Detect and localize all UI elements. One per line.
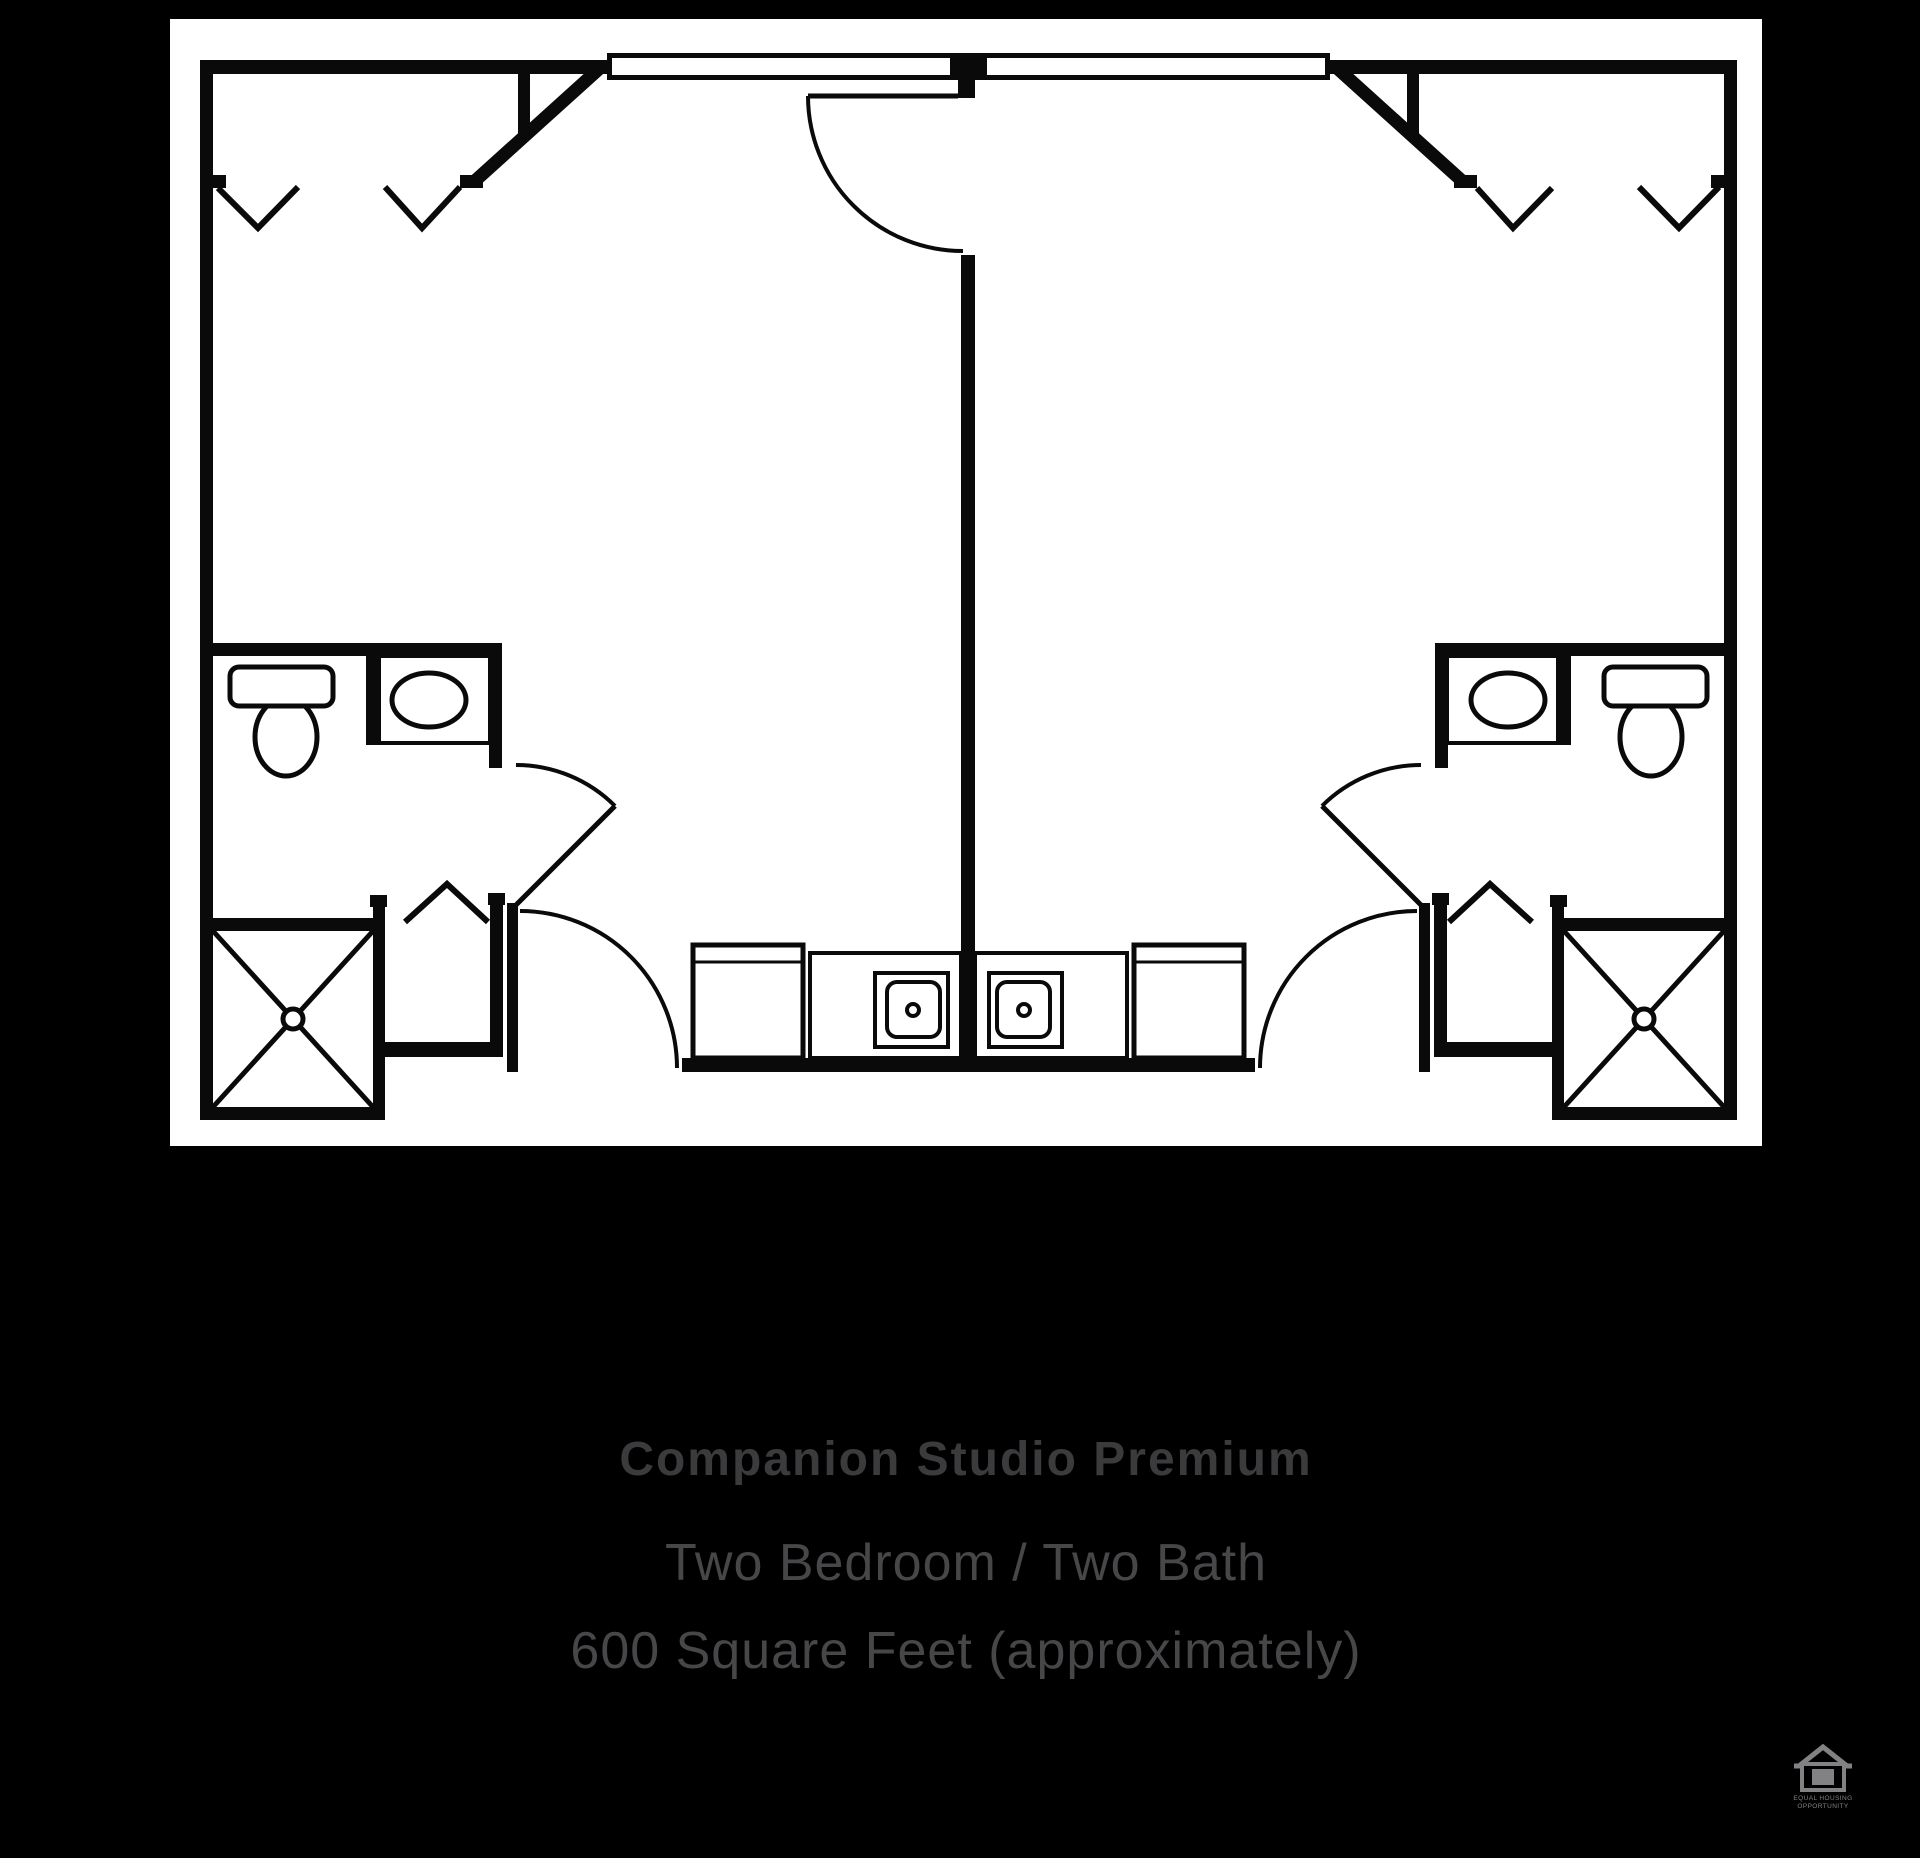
window-center-post: [950, 53, 982, 80]
entry-door-swing-left-icon: [520, 911, 677, 1068]
bath-door-tick-right: [1435, 755, 1448, 768]
closet-bottom-wall-left: [373, 1042, 503, 1057]
equal-housing-text-1: EQUAL HOUSING: [1793, 1795, 1852, 1802]
entry-door-swing-right-icon: [1260, 911, 1417, 1068]
closet-hanger-icon: [385, 187, 460, 228]
closet-side-wall-left-unit: [490, 897, 503, 1057]
entry-door-leaf-right: [1419, 903, 1430, 1072]
top-wall-left: [200, 60, 607, 74]
equal-housing-icon: EQUAL HOUSING OPPORTUNITY: [1791, 1740, 1855, 1816]
left-wall: [200, 60, 213, 1120]
floor-plan: [170, 19, 1762, 1146]
shower-top-wall-right: [1552, 918, 1737, 931]
rod-tick-left-wall: [213, 175, 226, 188]
toilet-left-icon: [230, 667, 333, 776]
caption: Companion Studio Premium Two Bedroom / T…: [170, 1432, 1762, 1695]
closet-tick-left-a: [370, 895, 387, 907]
closet-bottom-wall-right: [1434, 1042, 1564, 1057]
center-door-jamb: [958, 78, 975, 98]
page: { "caption": { "title": "Companion Studi…: [0, 0, 1920, 1858]
center-dividing-wall: [961, 255, 975, 1072]
closet-tick-right-b: [1550, 895, 1567, 907]
closet-hanger-up-icon: [405, 884, 488, 922]
equal-housing-house: EQUAL HOUSING OPPORTUNITY: [1791, 1740, 1855, 1816]
closet-tick-right-a: [1432, 893, 1449, 905]
bottom-wall-left-shower: [200, 1107, 385, 1120]
floor-plan-card: [170, 19, 1762, 1146]
closet-hanger-up-icon: [1449, 884, 1532, 922]
windows: [607, 53, 1330, 80]
closet-diagonal-right: [1337, 68, 1461, 180]
equal-housing-text-2: OPPORTUNITY: [1797, 1803, 1848, 1810]
window-right-glass: [987, 58, 1325, 75]
window-left-glass: [612, 58, 950, 75]
plan-subtitle-line1: Two Bedroom / Two Bath: [170, 1519, 1762, 1607]
shower-side-wall-right: [1552, 905, 1564, 1120]
closet-tick-left-b: [488, 893, 505, 905]
entry-door-leaf-left: [507, 903, 518, 1072]
closet-hanger-icon: [218, 187, 298, 228]
toilet-right-icon: [1604, 667, 1707, 776]
shower-left-icon: [213, 931, 373, 1107]
shower-side-wall-left: [373, 905, 385, 1120]
bath-door-tick-left: [489, 755, 502, 768]
plan-subtitle-line2: 600 Square Feet (approximately): [170, 1607, 1762, 1695]
closet-side-wall-right-unit: [1434, 897, 1447, 1057]
sink-right-icon: [1447, 656, 1569, 743]
sink-left-icon: [368, 656, 490, 743]
closet-diagonal-left: [476, 68, 600, 180]
top-wall-right: [1330, 60, 1737, 74]
plan-subtitle: Two Bedroom / Two Bath 600 Square Feet (…: [170, 1519, 1762, 1695]
bath-door-swing-left-icon: [516, 765, 615, 905]
plan-title: Companion Studio Premium: [170, 1432, 1762, 1487]
shower-top-wall-left: [200, 918, 385, 931]
shower-right-icon: [1564, 931, 1724, 1107]
center-door-swing-icon: [808, 96, 963, 251]
bath-door-swing-right-icon: [1322, 765, 1421, 905]
closet-hanger-icon: [1639, 187, 1719, 228]
right-wall: [1724, 60, 1737, 1120]
bottom-wall-right-shower: [1552, 1107, 1737, 1120]
closet-hanger-icon: [1477, 188, 1552, 228]
